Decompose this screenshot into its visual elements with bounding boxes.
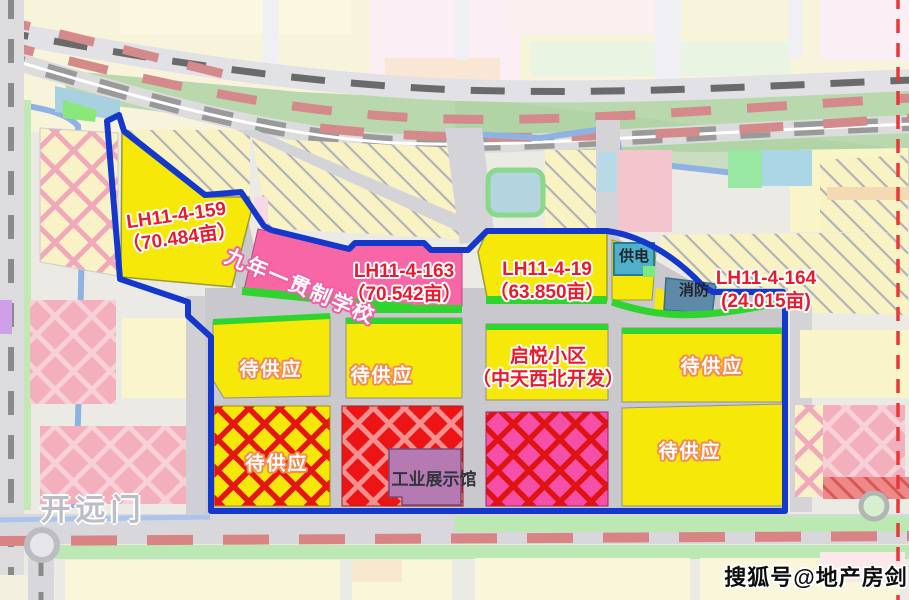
- roundabout-right: [861, 493, 887, 519]
- pending-label-2: 待供应: [350, 366, 413, 389]
- parcel-label-lh163: LH11-4-163 （70.542亩）: [346, 261, 461, 307]
- lh163-id: LH11-4-163: [346, 261, 461, 284]
- pending-label-3: 待供应: [680, 357, 743, 380]
- pending-label-5: 待供应: [658, 442, 721, 465]
- lh163-area: （70.542亩）: [346, 284, 461, 307]
- qiyue-name: 启悦小区: [472, 346, 624, 369]
- parcel-pending-1: [213, 316, 330, 398]
- outside-right-parcels: [795, 330, 909, 499]
- parcel-exhibition: [342, 406, 463, 506]
- lh164-area: (24.015亩): [716, 291, 816, 314]
- lh19-area: （63.850亩）: [489, 282, 604, 305]
- parcel-label-lh164: LH11-4-164 (24.015亩): [716, 268, 816, 314]
- roundabout-left: [27, 530, 57, 560]
- planning-map: LH11-4-159 （70.484亩） 九年一贯制学校 LH11-4-163 …: [0, 0, 909, 600]
- pending-label-4: 待供应: [245, 454, 308, 477]
- pending-label-1: 待供应: [239, 360, 302, 383]
- road-label-kaiyuanmen: 开远门: [41, 493, 146, 529]
- watermark: 搜狐号@地产房剑: [724, 565, 907, 591]
- power-station-label: 供电: [619, 248, 649, 266]
- parcel-label-qiyue: 启悦小区 （中天西北开发）: [472, 346, 624, 392]
- parcel-label-lh19: LH11-4-19 （63.850亩）: [489, 259, 604, 305]
- parcel-magenta-crosshatch: [486, 412, 608, 506]
- fire-station-label: 消防: [679, 282, 709, 300]
- lh164-id: LH11-4-164: [716, 268, 816, 291]
- lh19-id: LH11-4-19: [489, 259, 604, 282]
- exhibition-hall-label: 工业展示馆: [392, 470, 477, 490]
- qiyue-developer: （中天西北开发）: [472, 369, 624, 392]
